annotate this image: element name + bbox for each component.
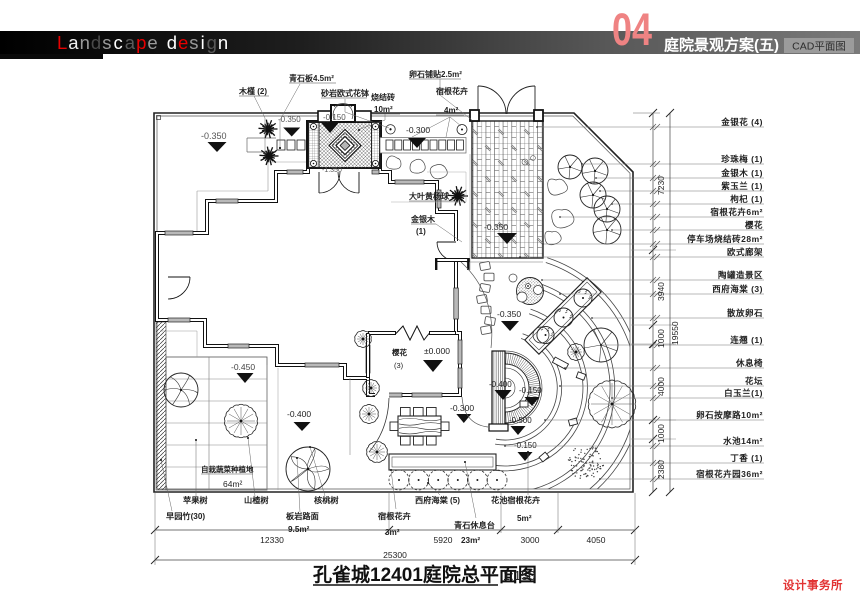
svg-text:-1.350: -1.350 [322, 167, 342, 174]
svg-text:青石休息台: 青石休息台 [454, 520, 495, 530]
svg-text:连翘 (1): 连翘 (1) [730, 335, 763, 345]
svg-text:d: d [91, 32, 101, 53]
svg-text:n: n [218, 32, 228, 53]
svg-text:烧结砖: 烧结砖 [371, 92, 395, 102]
svg-text:23m²: 23m² [461, 536, 480, 545]
svg-text:宿根花卉园36m²: 宿根花卉园36m² [696, 469, 763, 479]
svg-text:宿根花卉: 宿根花卉 [378, 511, 411, 521]
svg-text:停车场烧结砖28m²: 停车场烧结砖28m² [687, 234, 763, 244]
svg-text:-0.350: -0.350 [484, 222, 508, 232]
svg-text:樱花: 樱花 [392, 347, 407, 357]
svg-text:-0.350: -0.350 [278, 115, 301, 124]
svg-text:庭院景观方案(五): 庭院景观方案(五) [664, 36, 779, 54]
svg-text:欧式廊架: 欧式廊架 [727, 247, 763, 257]
svg-text:白玉兰(1): 白玉兰(1) [724, 388, 763, 398]
svg-text:-0.150: -0.150 [519, 386, 542, 395]
svg-text:a: a [68, 32, 79, 53]
svg-text:散放卵石: 散放卵石 [727, 308, 763, 318]
svg-text:1000: 1000 [656, 329, 666, 348]
svg-text:a: a [125, 32, 136, 53]
svg-text:s: s [102, 32, 111, 53]
svg-text:西府海棠 (5): 西府海棠 (5) [415, 495, 460, 505]
svg-text:64m²: 64m² [223, 479, 243, 489]
svg-text:-0.350: -0.350 [201, 131, 227, 141]
svg-text:04: 04 [612, 4, 652, 55]
svg-text:陶罐造景区: 陶罐造景区 [718, 270, 763, 280]
svg-text:砂岩欧式花钵: 砂岩欧式花钵 [320, 88, 370, 98]
svg-text:CAD平面图: CAD平面图 [792, 41, 846, 53]
svg-text:5920: 5920 [434, 535, 453, 545]
svg-text:10m²: 10m² [374, 105, 393, 114]
svg-text:宿根花卉: 宿根花卉 [436, 86, 468, 96]
svg-text:枸杞 (1): 枸杞 (1) [730, 194, 763, 204]
svg-text:e: e [178, 32, 188, 53]
svg-text:金银木: 金银木 [410, 214, 436, 224]
svg-text:-0.400: -0.400 [489, 380, 512, 389]
svg-text:-0.150: -0.150 [514, 441, 537, 450]
svg-text:7230: 7230 [656, 176, 666, 195]
svg-text:金银木 (1): 金银木 (1) [720, 168, 763, 178]
svg-text:e: e [147, 32, 157, 53]
svg-text:(1): (1) [416, 227, 426, 236]
svg-text:-0.400: -0.400 [287, 409, 311, 419]
svg-text:3940: 3940 [656, 282, 666, 301]
svg-text:山楂树: 山楂树 [244, 495, 269, 505]
svg-text:青石板4.5m²: 青石板4.5m² [289, 73, 334, 83]
svg-text:3m²: 3m² [385, 528, 400, 537]
svg-text:花坛: 花坛 [745, 376, 763, 386]
svg-text:n: n [80, 32, 90, 53]
svg-text:紫玉兰 (1): 紫玉兰 (1) [721, 181, 763, 191]
svg-text:花池宿根花卉: 花池宿根花卉 [491, 495, 540, 505]
svg-text:西府海棠 (3): 西府海棠 (3) [712, 284, 763, 294]
svg-text:大叶黄杨球: 大叶黄杨球 [409, 191, 450, 201]
svg-text:苹果树: 苹果树 [183, 495, 208, 505]
svg-text:卵石按摩路10m²: 卵石按摩路10m² [696, 410, 763, 420]
svg-text:-0.450: -0.450 [231, 362, 255, 372]
svg-text:c: c [114, 32, 123, 53]
svg-text:2380: 2380 [656, 460, 666, 479]
svg-text:卵石铺贴2.5m²: 卵石铺贴2.5m² [409, 69, 462, 79]
svg-text:g: g [207, 32, 217, 53]
svg-text:±0.000: ±0.000 [424, 346, 450, 356]
svg-text:-0.350: -0.350 [497, 309, 521, 319]
svg-text:宿根花卉6m²: 宿根花卉6m² [710, 207, 763, 217]
svg-text:木槿 (2): 木槿 (2) [238, 86, 267, 96]
svg-text:L: L [57, 32, 67, 53]
svg-text:丁香 (1): 丁香 (1) [730, 453, 763, 463]
svg-text:d: d [167, 32, 177, 53]
svg-text:4000: 4000 [656, 377, 666, 396]
svg-text:核桃树: 核桃树 [314, 495, 339, 505]
svg-text:i: i [201, 32, 205, 53]
svg-text:-0.300: -0.300 [450, 403, 474, 413]
svg-text:3000: 3000 [521, 535, 540, 545]
svg-text:板岩路面: 板岩路面 [286, 511, 319, 521]
svg-text:金银花 (4): 金银花 (4) [720, 117, 763, 127]
svg-text:设计事务所: 设计事务所 [783, 578, 843, 592]
svg-text:5m²: 5m² [517, 514, 532, 523]
svg-text:-0.150: -0.150 [323, 113, 346, 122]
svg-text:早园竹(30): 早园竹(30) [166, 511, 205, 521]
svg-text:12330: 12330 [260, 535, 284, 545]
svg-text:25300: 25300 [383, 550, 407, 560]
svg-text:4m²: 4m² [444, 106, 459, 115]
svg-text:1:150: 1:150 [503, 568, 536, 583]
svg-text:自栽蔬菜种植地: 自栽蔬菜种植地 [201, 464, 254, 474]
svg-text:-0.500: -0.500 [509, 416, 532, 425]
svg-text:珍珠梅 (1): 珍珠梅 (1) [721, 154, 763, 164]
svg-text:休息椅: 休息椅 [735, 358, 763, 368]
svg-text:9.5m²: 9.5m² [288, 525, 310, 534]
svg-text:19550: 19550 [670, 321, 680, 345]
svg-text:p: p [136, 32, 146, 53]
svg-text:s: s [189, 32, 198, 53]
svg-text:4050: 4050 [587, 535, 606, 545]
svg-text:水池14m²: 水池14m² [722, 436, 763, 446]
svg-text:(3): (3) [394, 361, 404, 370]
svg-text:樱花: 樱花 [745, 220, 763, 230]
svg-text:1000: 1000 [656, 424, 666, 443]
